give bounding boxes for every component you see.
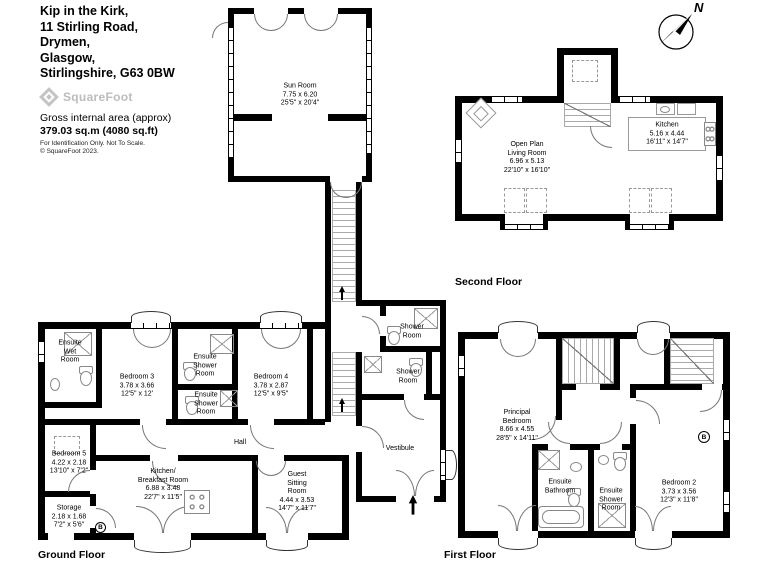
window bbox=[723, 420, 730, 440]
door-arc bbox=[518, 339, 536, 357]
wall-opening bbox=[635, 531, 672, 538]
room-label: Ensuite Shower Room bbox=[599, 487, 623, 513]
shower-icon bbox=[364, 356, 382, 373]
skylight bbox=[651, 188, 672, 213]
door-arc bbox=[254, 14, 271, 31]
floorplan-drawing: BBSun Room7.75 x 6.2025'5" x 20'4"Open P… bbox=[0, 0, 768, 576]
room-label-metric: 7.75 x 6.20 bbox=[281, 91, 319, 100]
wall bbox=[588, 444, 594, 531]
room-label: Storage2.18 x 1.687'2" x 5'6" bbox=[52, 504, 87, 530]
room-label-imperial: 12'5" x 9'5" bbox=[254, 390, 289, 399]
wall-opening bbox=[266, 533, 308, 540]
room-label-name: Open Plan Living Room bbox=[504, 141, 550, 158]
bow-window bbox=[446, 450, 457, 480]
door-arc bbox=[700, 390, 722, 412]
hob-icon bbox=[704, 122, 716, 146]
room-label-name: Kitchen/ Breakfast Room bbox=[138, 468, 188, 485]
room-label: Guest Sitting Room4.44 x 3.5314'7" x 11'… bbox=[278, 471, 316, 514]
room-label: Ensuite Wet Room bbox=[58, 339, 81, 365]
skylight bbox=[526, 188, 547, 213]
wall bbox=[614, 332, 620, 390]
bow-window bbox=[637, 321, 670, 333]
window bbox=[260, 322, 302, 329]
bow-window bbox=[498, 321, 538, 333]
door-arc bbox=[250, 425, 274, 449]
room-label: Bedroom 54.22 x 2.1813'10" x 7'2" bbox=[50, 450, 88, 476]
bow-window bbox=[635, 538, 672, 550]
room-label-metric: 3.78 x 3.66 bbox=[120, 382, 155, 391]
room-label: Ensuite Shower Room bbox=[193, 353, 217, 379]
door-arc bbox=[415, 470, 434, 496]
door-arc bbox=[212, 22, 228, 38]
sink-icon bbox=[50, 378, 60, 391]
wall bbox=[252, 461, 258, 540]
room-label-metric: 5.16 x 4.44 bbox=[646, 130, 688, 139]
window bbox=[505, 224, 543, 230]
door-arc bbox=[304, 14, 321, 31]
wall bbox=[356, 300, 446, 306]
stair-direction-arrow bbox=[338, 286, 346, 301]
room-label-imperial: 13'10" x 7'2" bbox=[50, 467, 88, 476]
door-arc bbox=[256, 461, 271, 476]
wall bbox=[356, 176, 362, 302]
stair-rail-line bbox=[562, 338, 614, 384]
room-label: Shower Room bbox=[400, 324, 424, 341]
bow-window bbox=[260, 311, 302, 323]
room-label-name: Hall bbox=[234, 439, 246, 448]
door-arc bbox=[404, 400, 424, 420]
room-label: Ensuite Shower Room bbox=[194, 391, 218, 417]
window bbox=[366, 28, 372, 153]
wall-opening bbox=[498, 332, 538, 339]
wall bbox=[325, 176, 331, 422]
wall bbox=[172, 329, 178, 425]
door-arc bbox=[271, 14, 288, 31]
door-arc bbox=[142, 425, 166, 449]
room-label: Bedroom 23.73 x 3.5612'3" x 11'8" bbox=[660, 479, 698, 505]
bow-window bbox=[498, 538, 538, 550]
room-label: Open Plan Living Room6.96 x 5.1322'10" x… bbox=[504, 141, 550, 175]
wall-opening bbox=[564, 96, 611, 103]
wall bbox=[96, 455, 349, 461]
wall-opening bbox=[498, 531, 538, 538]
wall bbox=[380, 346, 446, 352]
door-arc bbox=[637, 339, 653, 355]
room-label: Hall bbox=[234, 439, 246, 448]
wall bbox=[96, 329, 102, 408]
door-arc bbox=[498, 505, 517, 531]
room-label-name: Guest Sitting Room bbox=[278, 471, 316, 497]
room-label-imperial: 16'11" x 14'7" bbox=[646, 138, 688, 147]
wall bbox=[342, 455, 349, 540]
stair-direction-arrow bbox=[338, 398, 346, 413]
room-label-name: Storage bbox=[52, 504, 87, 513]
room-label-metric: 4.22 x 2.18 bbox=[50, 459, 88, 468]
door-arc bbox=[600, 422, 622, 444]
window bbox=[630, 224, 669, 230]
window bbox=[620, 96, 650, 103]
window bbox=[38, 342, 45, 362]
room-label-name: Principal Bedroom bbox=[496, 409, 538, 426]
boiler-badge: B bbox=[698, 431, 710, 443]
door-arc bbox=[548, 422, 570, 444]
room-label-name: Ensuite Bathroom bbox=[545, 479, 575, 496]
room-label-name: Ensuite Shower Room bbox=[193, 353, 217, 379]
room-label-name: Vestibule bbox=[386, 445, 414, 454]
wall bbox=[356, 394, 440, 400]
shower-icon bbox=[220, 390, 238, 407]
room-label: Sun Room7.75 x 6.2025'5" x 20'4" bbox=[281, 82, 319, 108]
bathtub-icon bbox=[538, 506, 584, 528]
room-label-imperial: 22'7" x 11'5" bbox=[138, 494, 188, 503]
wall-opening bbox=[90, 470, 96, 494]
wall bbox=[611, 48, 618, 103]
door-arc bbox=[500, 339, 518, 357]
room-label-name: Sun Room bbox=[281, 82, 319, 91]
door-arc bbox=[517, 505, 536, 531]
sink-icon bbox=[598, 455, 609, 465]
wall bbox=[543, 214, 548, 230]
door-arc bbox=[590, 126, 612, 148]
wall-opening bbox=[48, 533, 74, 540]
room-label-name: Ensuite Shower Room bbox=[599, 487, 623, 513]
wall bbox=[44, 402, 102, 408]
door-arc bbox=[362, 316, 380, 334]
room-label-name: Ensuite Shower Room bbox=[194, 391, 218, 417]
wall bbox=[228, 114, 272, 121]
sink-icon bbox=[570, 462, 582, 472]
room-label-metric: 3.78 x 2.87 bbox=[254, 382, 289, 391]
window bbox=[228, 28, 234, 158]
room-label: Kitchen/ Breakfast Room6.88 x 3.4822'7" … bbox=[138, 468, 188, 502]
skylight bbox=[572, 60, 598, 82]
door-arc bbox=[281, 329, 301, 349]
room-label-name: Ensuite Wet Room bbox=[58, 339, 81, 365]
room-label-name: Bedroom 5 bbox=[50, 450, 88, 459]
room-label: Kitchen5.16 x 4.4416'11" x 14'7" bbox=[646, 121, 688, 147]
wall bbox=[426, 352, 432, 400]
room-label-metric: 2.18 x 1.68 bbox=[52, 513, 87, 522]
wall bbox=[600, 384, 620, 390]
room-label-name: Kitchen bbox=[646, 121, 688, 130]
room-label-metric: 6.96 x 5.13 bbox=[504, 158, 550, 167]
boiler-badge: B bbox=[95, 522, 106, 533]
door-arc bbox=[152, 329, 171, 348]
room-label: Bedroom 43.78 x 2.8712'5" x 9'5" bbox=[254, 373, 289, 399]
door-arc bbox=[396, 470, 415, 496]
bow-window bbox=[131, 311, 171, 323]
sink-icon bbox=[660, 106, 670, 113]
room-label-name: Bedroom 3 bbox=[120, 373, 155, 382]
toilet-icon bbox=[386, 326, 400, 343]
window bbox=[131, 322, 171, 329]
wall bbox=[557, 48, 564, 103]
room-label-imperial: 28'5" x 14'11" bbox=[496, 435, 538, 444]
door-arc bbox=[136, 506, 163, 533]
door-arc bbox=[653, 506, 671, 531]
room-label-name: Bedroom 2 bbox=[660, 479, 698, 488]
wall-opening bbox=[505, 214, 543, 221]
window bbox=[492, 96, 522, 103]
skylight bbox=[504, 188, 525, 213]
wall bbox=[455, 214, 723, 221]
door-arc bbox=[635, 506, 653, 531]
room-label-imperial: 7'2" x 5'6" bbox=[52, 521, 87, 530]
floorplan-page: Kip in the Kirk, 11 Stirling Road, Dryme… bbox=[0, 0, 768, 576]
stair-rail-line bbox=[670, 338, 714, 384]
window bbox=[716, 156, 723, 180]
room-label-name: Shower Room bbox=[396, 369, 420, 386]
toilet-icon bbox=[612, 452, 626, 469]
room-label-imperial: 14'7" x 11'7" bbox=[278, 505, 316, 514]
door-arc bbox=[636, 400, 660, 424]
toilet-icon bbox=[78, 366, 92, 384]
shower-icon bbox=[210, 334, 234, 354]
skylight bbox=[629, 188, 650, 213]
room-label-name: Bedroom 4 bbox=[254, 373, 289, 382]
room-label: Principal Bedroom8.66 x 4.5528'5" x 14'1… bbox=[496, 409, 538, 443]
wall-opening bbox=[637, 332, 670, 339]
wall-opening bbox=[600, 444, 622, 450]
door-arc bbox=[261, 329, 281, 349]
wall bbox=[307, 329, 313, 425]
stair-direction-arrow bbox=[407, 495, 418, 516]
window bbox=[455, 140, 462, 162]
room-label-metric: 4.44 x 3.53 bbox=[278, 496, 316, 505]
wall-opening bbox=[134, 533, 191, 540]
room-label-imperial: 12'3" x 11'8" bbox=[660, 496, 698, 505]
bow-window bbox=[266, 540, 308, 551]
wall bbox=[557, 48, 618, 55]
wall bbox=[556, 390, 562, 420]
door-arc bbox=[133, 329, 152, 348]
wall bbox=[669, 214, 674, 230]
door-arc bbox=[362, 426, 384, 448]
room-label-name: Shower Room bbox=[400, 324, 424, 341]
bow-window bbox=[134, 540, 191, 553]
room-label: Vestibule bbox=[386, 445, 414, 454]
room-label: Shower Room bbox=[396, 369, 420, 386]
wall-opening bbox=[630, 214, 669, 221]
room-label-metric: 8.66 x 4.55 bbox=[496, 426, 538, 435]
room-label-metric: 6.88 x 3.48 bbox=[138, 485, 188, 494]
room-label: Bedroom 33.78 x 3.6612'5" x 12' bbox=[120, 373, 155, 399]
shower-icon bbox=[538, 450, 560, 470]
room-label-imperial: 12'5" x 12' bbox=[120, 390, 155, 399]
wall bbox=[44, 419, 325, 425]
fixture-outline bbox=[677, 103, 696, 115]
stair-rail-line bbox=[564, 103, 611, 127]
room-label-imperial: 22'10" x 16'10" bbox=[504, 167, 550, 176]
window bbox=[458, 356, 465, 376]
window bbox=[723, 492, 730, 512]
door-arc bbox=[321, 14, 338, 31]
wall bbox=[228, 8, 372, 14]
room-label-metric: 3.73 x 3.56 bbox=[660, 488, 698, 497]
room-label-imperial: 25'5" x 20'4" bbox=[281, 99, 319, 108]
room-label: Ensuite Bathroom bbox=[545, 479, 575, 496]
